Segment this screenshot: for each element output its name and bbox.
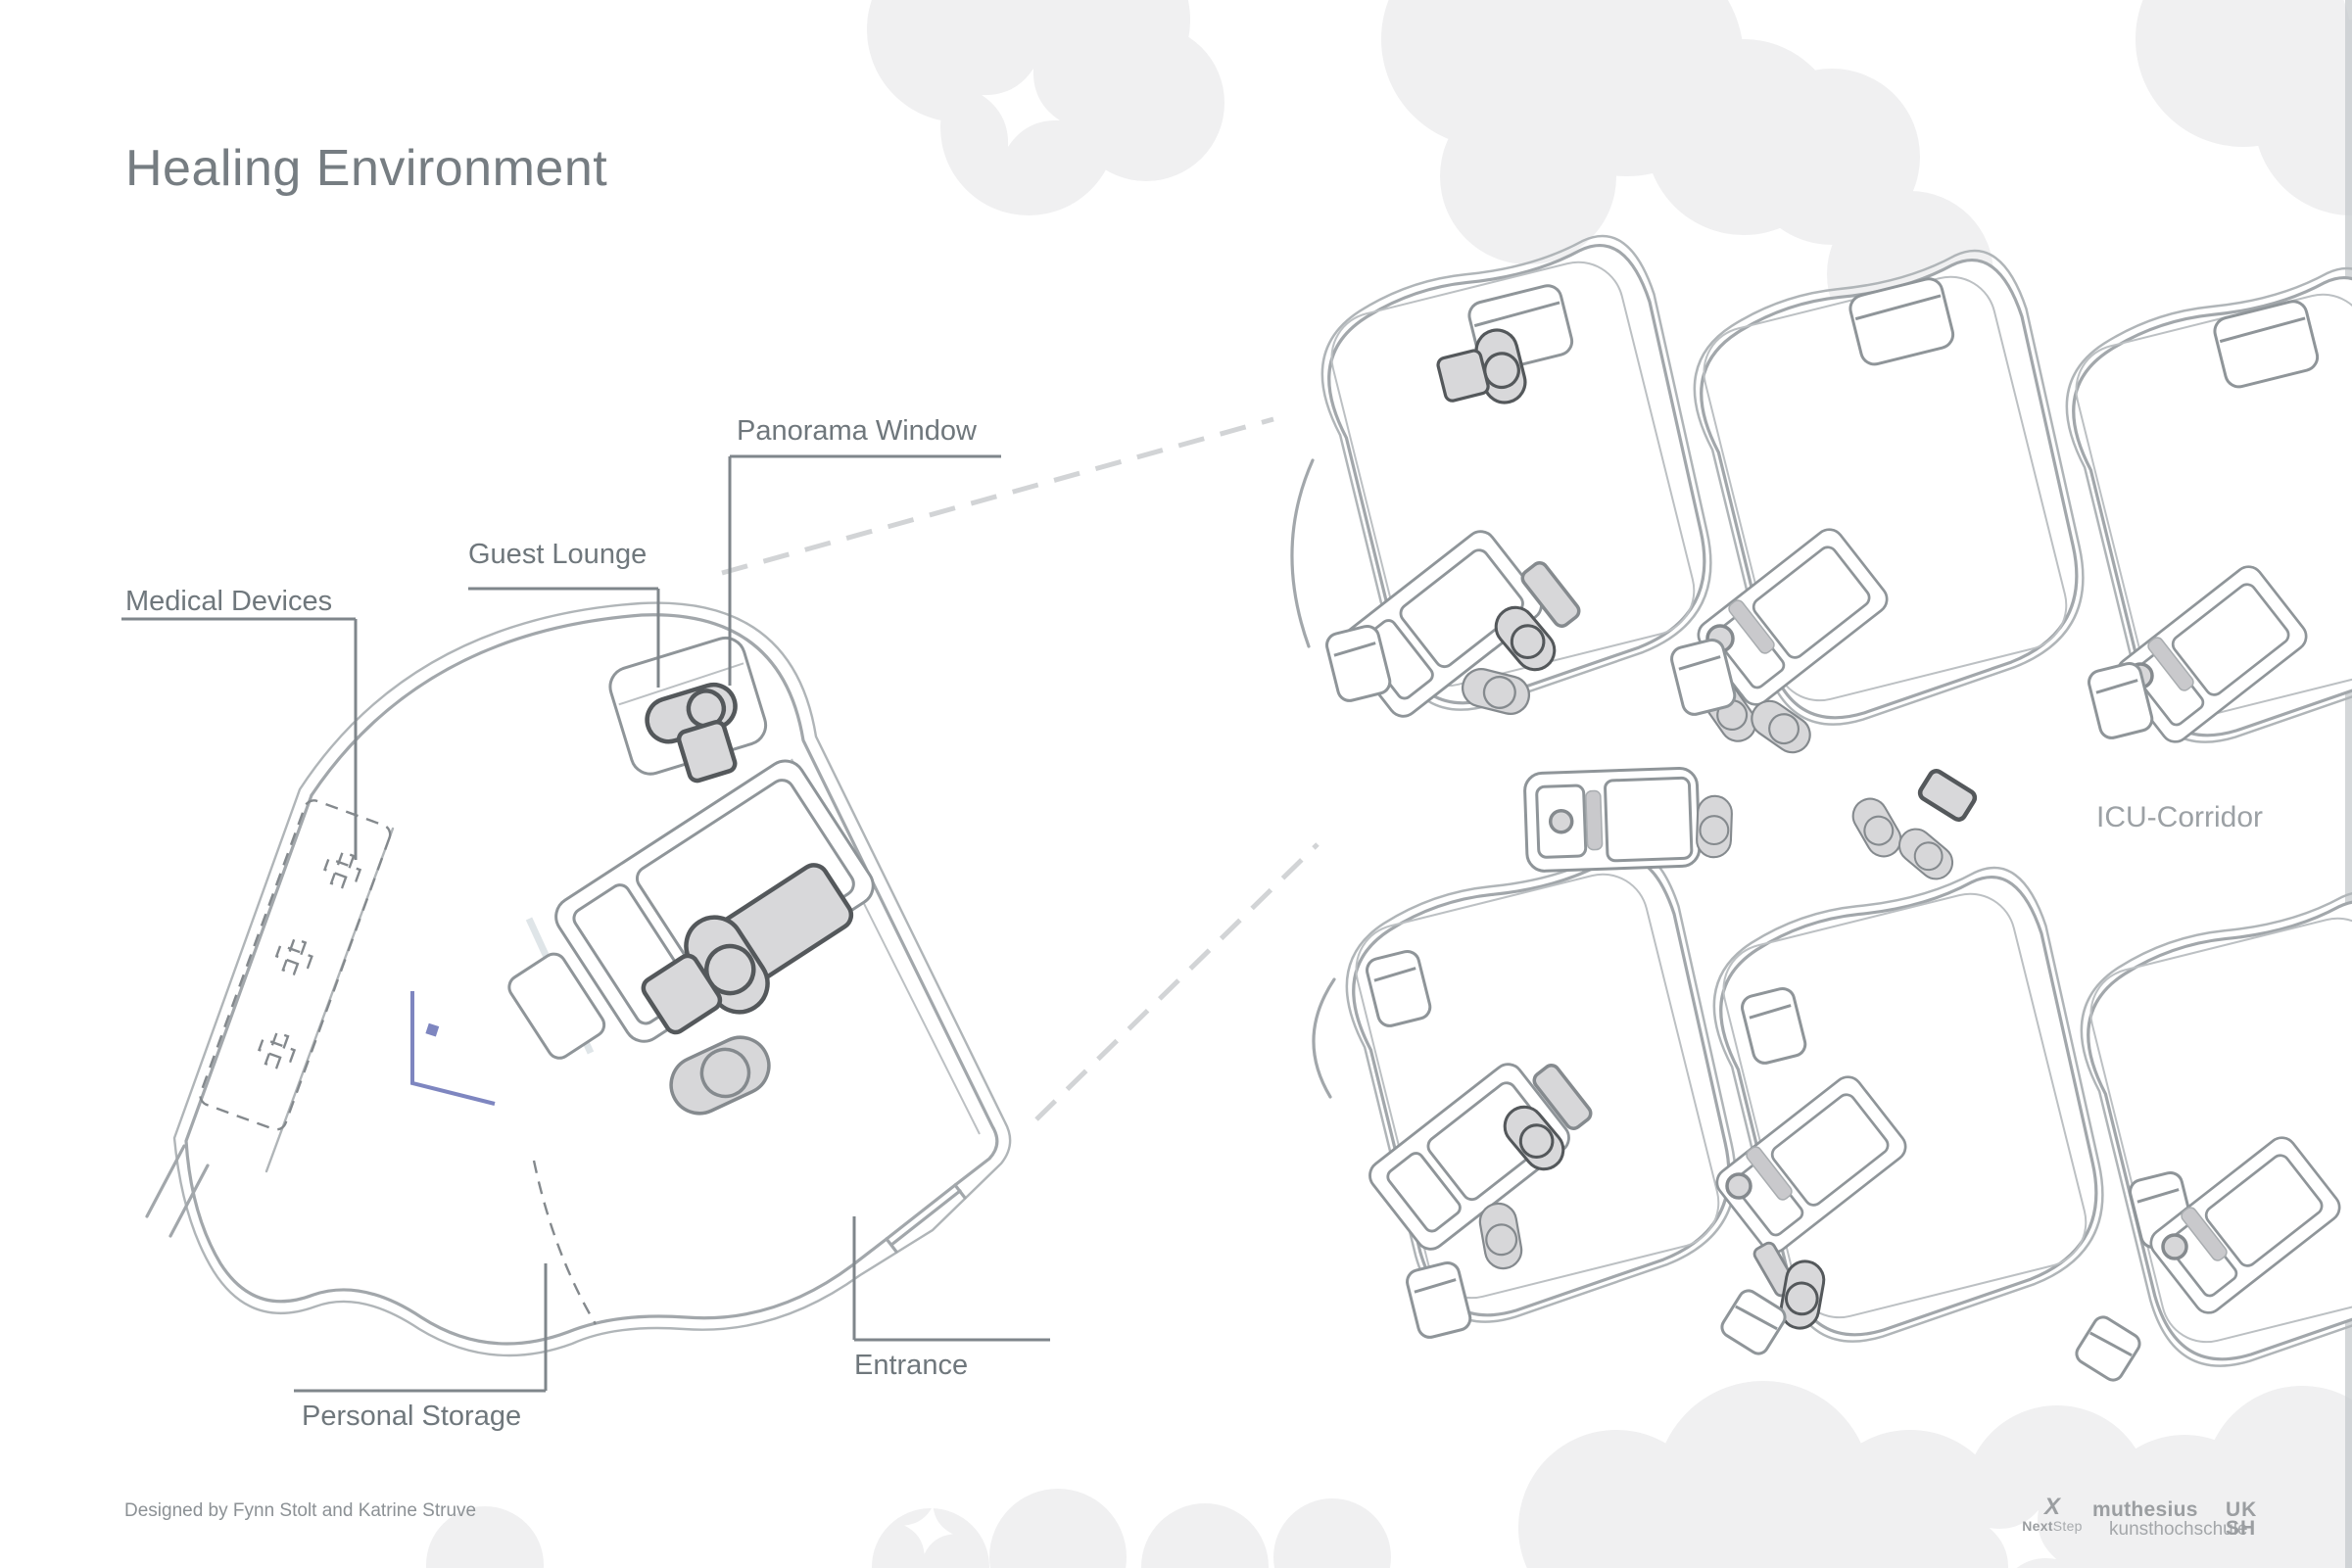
medical-devices-zone [198, 798, 393, 1133]
star-cutout-icon [1882, 9, 1940, 67]
uksh-logo-line2: SH [2226, 1519, 2257, 1538]
transport-bed-icon [1524, 768, 1700, 872]
guest-lounge-icon [605, 633, 776, 797]
entrance-label: Entrance [854, 1350, 968, 1382]
personal-storage-zone [534, 1161, 596, 1324]
muthesius-logo: muthesius kunsthochschule [2092, 1500, 2248, 1539]
entrance-door-icon [887, 1185, 965, 1252]
uksh-logo: UK SH [2226, 1500, 2257, 1538]
plan-drawing [0, 0, 2352, 1568]
slide: Healing Environment Panorama Window Gues… [0, 0, 2352, 1568]
patient-room-plan [147, 603, 1010, 1355]
personal-storage-label: Personal Storage [302, 1401, 521, 1433]
background-floral-shapes [426, 0, 2352, 1568]
person-head-icon [1727, 1174, 1751, 1198]
nextstep-logo: X NextStep [1998, 1497, 2106, 1534]
person-icon [1847, 792, 1906, 862]
muthesius-logo-line1: muthesius [2092, 1500, 2248, 1520]
person-head-icon [2163, 1235, 2186, 1259]
nextstep-logo-text: NextStep [1998, 1518, 2106, 1534]
equipment-cart-icon [1917, 769, 1977, 823]
storage-icon [1718, 1287, 1789, 1357]
room-bottom-2 [1696, 858, 2134, 1357]
right-edge-strip [2345, 0, 2352, 1568]
panorama-window-label: Panorama Window [737, 415, 977, 448]
nextstep-logo-icon: X [1998, 1497, 2106, 1518]
accent-line [412, 991, 495, 1104]
person-icon [1697, 795, 1733, 858]
icu-corridor-label: ICU-Corridor [2096, 801, 2263, 834]
person-icon [662, 1028, 779, 1123]
person-icon [1893, 823, 1959, 886]
medical-devices-label: Medical Devices [125, 586, 332, 618]
device-marker-icon [425, 1023, 439, 1037]
zoom-connector-lines [722, 419, 1318, 1119]
guest-lounge-label: Guest Lounge [468, 539, 647, 571]
page-title: Healing Environment [125, 139, 607, 198]
storage-icon [2073, 1313, 2143, 1384]
designer-credit: Designed by Fynn Stolt and Katrine Struv… [124, 1500, 476, 1522]
